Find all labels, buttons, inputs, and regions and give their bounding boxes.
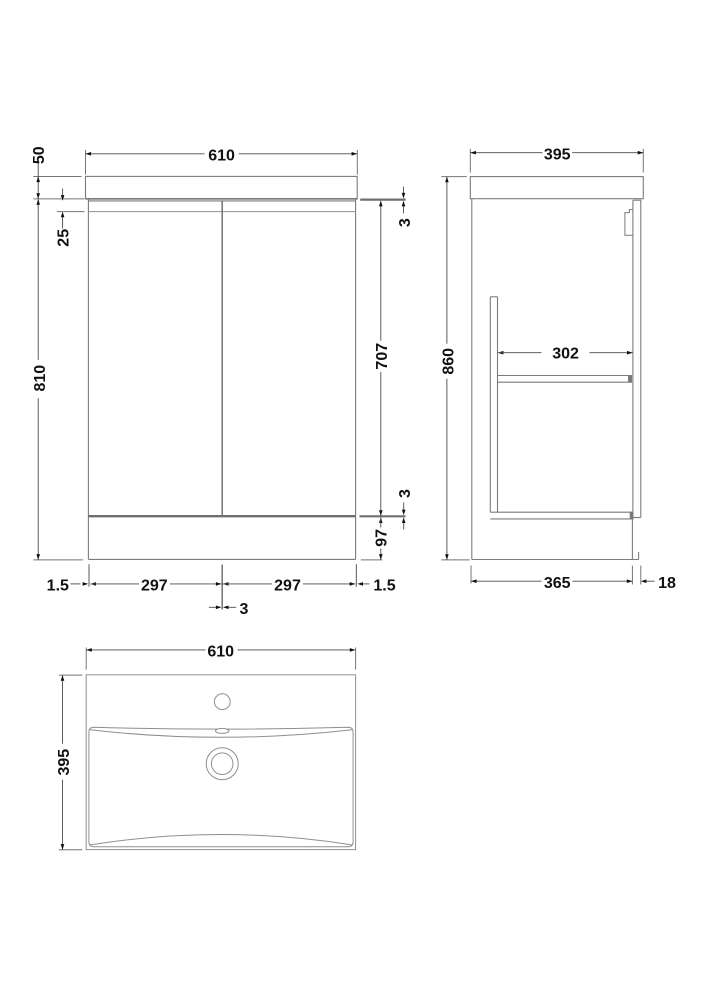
svg-text:810: 810 [32,365,49,392]
svg-text:97: 97 [374,529,391,547]
svg-text:297: 297 [141,578,168,595]
svg-text:707: 707 [374,343,391,370]
svg-text:610: 610 [208,148,235,165]
svg-text:3: 3 [239,601,248,618]
svg-text:50: 50 [31,146,48,164]
svg-text:297: 297 [274,578,301,595]
svg-text:25: 25 [56,229,73,247]
svg-text:302: 302 [552,346,579,363]
svg-text:860: 860 [440,348,457,375]
svg-text:365: 365 [544,575,571,592]
svg-text:18: 18 [658,575,676,592]
svg-text:3: 3 [397,218,414,227]
svg-text:395: 395 [56,749,73,776]
svg-text:395: 395 [544,147,571,164]
svg-text:610: 610 [207,644,234,661]
svg-text:3: 3 [397,489,414,498]
svg-text:1.5: 1.5 [47,578,69,595]
svg-text:1.5: 1.5 [373,578,395,595]
